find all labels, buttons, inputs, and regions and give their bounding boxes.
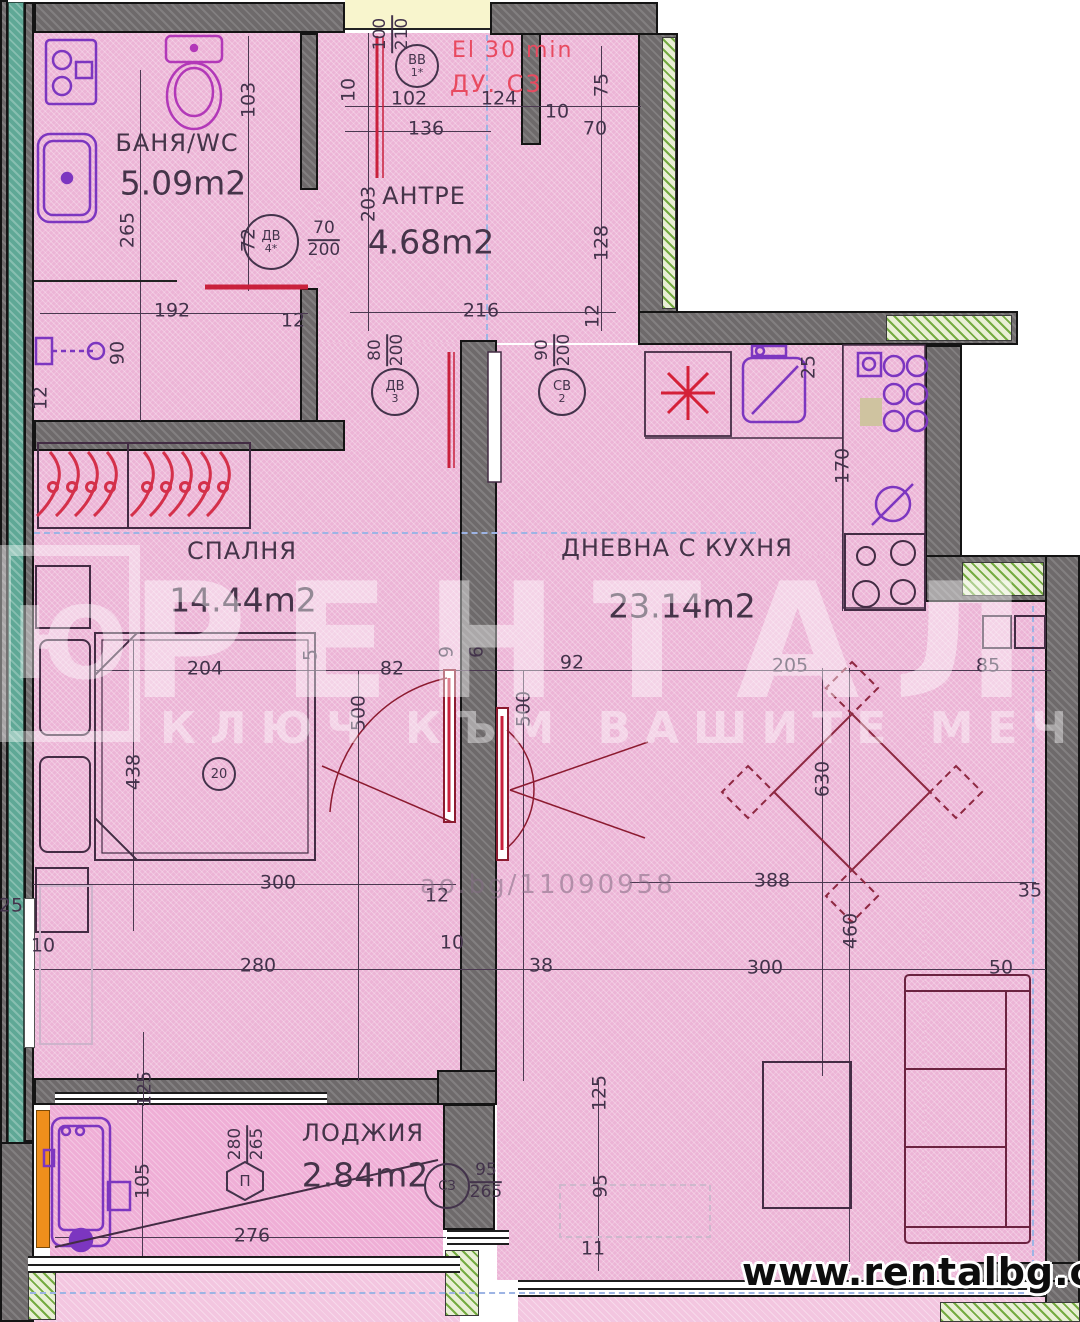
hex-tag: П	[224, 1160, 266, 1202]
circle-tag: СВ2	[538, 368, 586, 416]
watermark-site-url: www.rentalbg.com	[742, 1250, 1080, 1294]
watermark-logo: Ю	[0, 545, 140, 742]
watermark-tagline: КЛЮЧ КЪМ ВАШИТЕ МЕЧТИ	[160, 703, 1080, 754]
watermark-photo-code: ao.bg/11090958	[420, 870, 676, 900]
circle-tag: ДВ3	[371, 368, 419, 416]
circle-tag: ДВ4*	[243, 214, 299, 270]
floor-plan: БАНЯ/WC 5.09m2 АНТРЕ 4.68m2 СПАЛНЯ 14.44…	[0, 0, 1080, 1322]
circle-tag: ВВ1*	[395, 44, 439, 88]
circle-tag: СЗ	[424, 1163, 470, 1209]
circle-tag: 20	[202, 757, 236, 791]
